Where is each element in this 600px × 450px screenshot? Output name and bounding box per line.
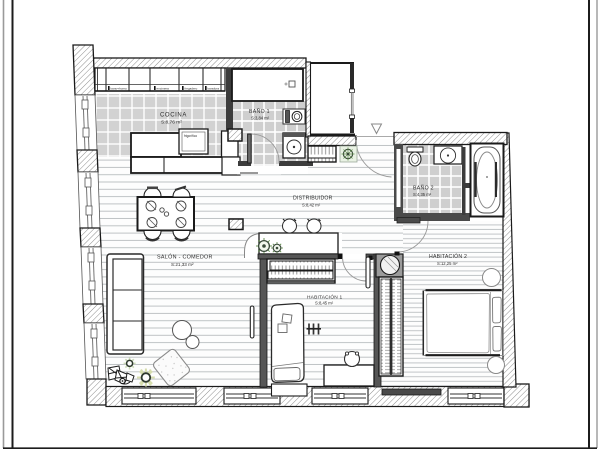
svg-text:BAÑO 2: BAÑO 2	[413, 185, 434, 192]
svg-text:S:8,42 m²: S:8,42 m²	[302, 203, 321, 208]
svg-text:frigorífico: frigorífico	[184, 134, 197, 138]
svg-text:BAÑO 1: BAÑO 1	[249, 108, 270, 115]
svg-text:DISTRIBUIDOR: DISTRIBUIDOR	[293, 195, 333, 201]
svg-text:HABITACIÓN 2: HABITACIÓN 2	[429, 253, 467, 260]
svg-text:S:3,84 m²: S:3,84 m²	[251, 115, 270, 120]
svg-text:SALÓN - COMEDOR: SALÓN - COMEDOR	[157, 253, 213, 260]
svg-text:HABITACIÓN 1: HABITACIÓN 1	[307, 293, 342, 300]
svg-text:S:8,76 m²: S:8,76 m²	[161, 120, 182, 126]
svg-text:S:12,25 m²: S:12,25 m²	[437, 261, 458, 266]
svg-text:S:8,45 m²: S:8,45 m²	[315, 301, 334, 306]
svg-text:COCINA: COCINA	[160, 113, 187, 119]
svg-text:fregadero: fregadero	[185, 87, 198, 91]
svg-text:S:21,33 m²: S:21,33 m²	[171, 262, 194, 267]
svg-text:lavav+horno: lavav+horno	[111, 87, 128, 91]
svg-text:lavadora: lavadora	[208, 87, 220, 91]
svg-text:S:4,35 m²: S:4,35 m²	[413, 192, 432, 197]
svg-text:encimera: encimera	[157, 87, 170, 91]
